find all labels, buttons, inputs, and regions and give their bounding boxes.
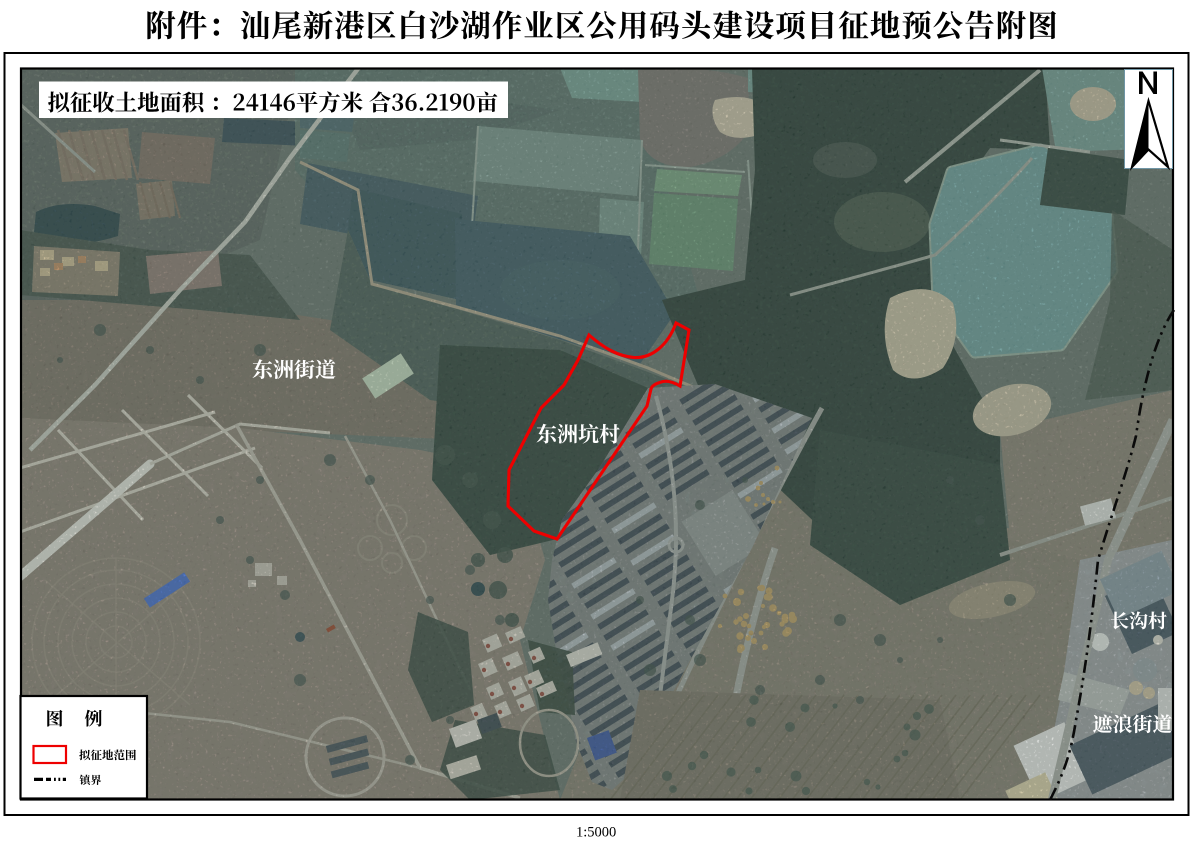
svg-text:1:5000: 1:5000: [576, 825, 616, 841]
